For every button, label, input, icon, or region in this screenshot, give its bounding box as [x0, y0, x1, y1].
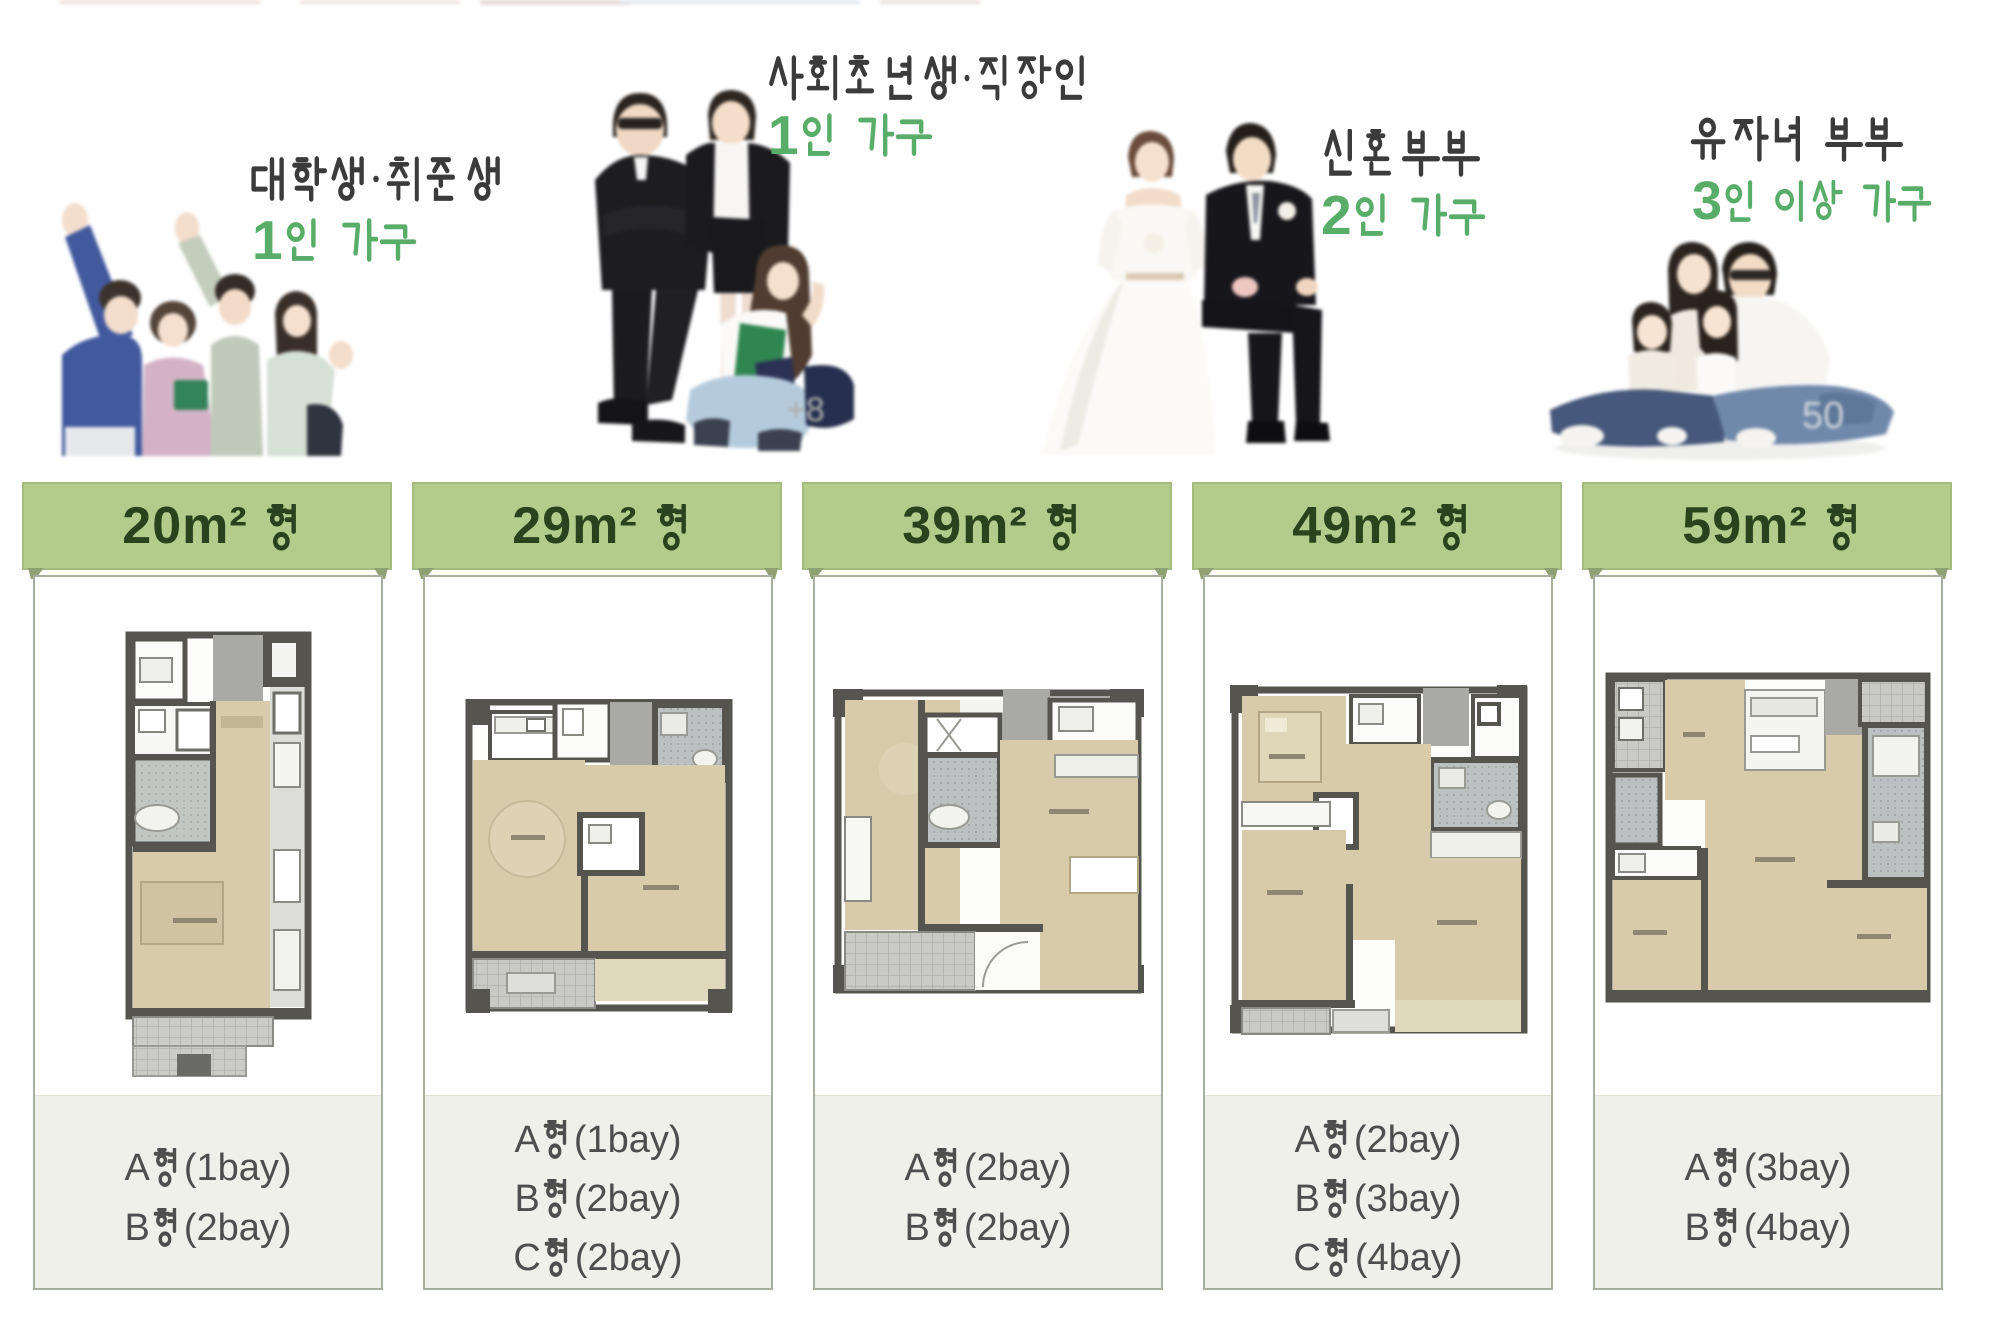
svg-text:50: 50	[1802, 395, 1844, 437]
svg-text:+8: +8	[786, 391, 825, 429]
